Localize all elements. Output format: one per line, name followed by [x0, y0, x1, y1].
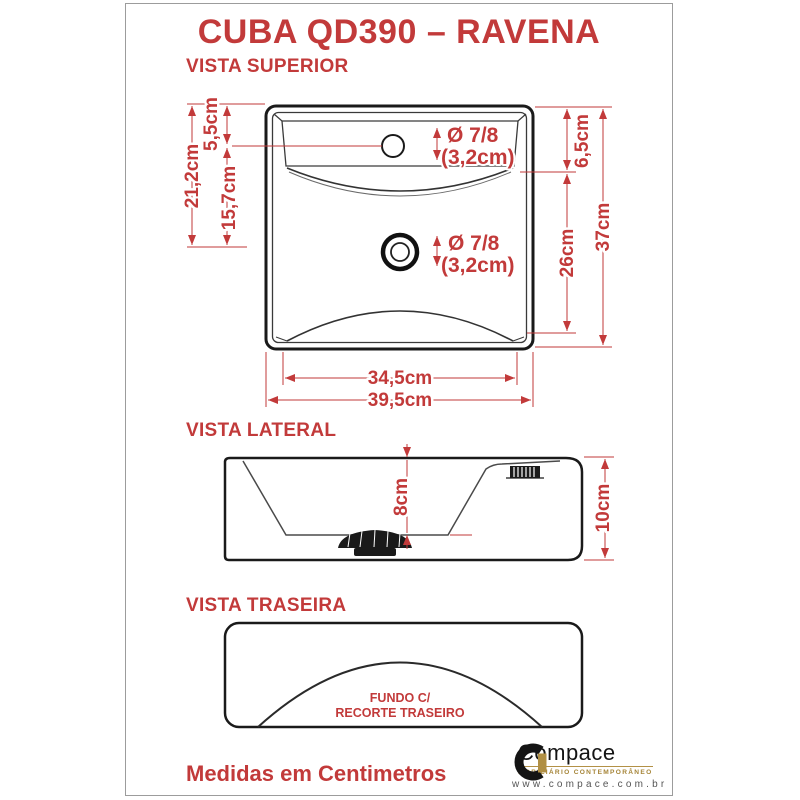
- faucet-diameter-label-cm: (3,2cm): [441, 146, 515, 169]
- dim-label-inner-depth: 8cm: [391, 478, 412, 516]
- dim-label-top-to-faucet: 5,5cm: [201, 97, 222, 151]
- section-label-side-view: VISTA LATERAL: [186, 420, 336, 442]
- compace-logo: Compace MOBILIÁRIO CONTEMPORÂNEO www.com…: [512, 742, 668, 790]
- dim-label-top-to-drain: 21,2cm: [182, 144, 203, 208]
- dim-label-total-height: 10cm: [593, 484, 614, 533]
- dim-label-inner-width: 34,5cm: [368, 368, 432, 389]
- page-title: CUBA QD390 – RAVENA: [125, 13, 673, 52]
- spec-sheet-page: CUBA QD390 – RAVENA VISTA SUPERIOR: [0, 0, 800, 800]
- faucet-hole: [382, 135, 404, 157]
- dim-label-right-total: 37cm: [593, 203, 614, 252]
- dim-label-right-top: 6,5cm: [572, 114, 593, 168]
- back-cutout-note-line1: FUNDO C/: [370, 691, 431, 705]
- faucet-hole-side: [506, 466, 544, 478]
- drain-diameter-label: Ø 7/8: [448, 232, 500, 255]
- units-note: Medidas em Centimetros: [186, 761, 446, 787]
- dim-label-right-mid: 26cm: [557, 229, 578, 278]
- back-view-drawing: FUNDO C/ RECORTE TRASEIRO: [125, 590, 673, 740]
- side-view-drawing: 8cm 10cm: [125, 440, 673, 580]
- top-view-drawing: 21,2cm 5,5cm 15,7cm 6,5cm 26cm 37cm 34,5…: [125, 85, 673, 415]
- compace-c-icon: [512, 742, 552, 782]
- dim-label-faucet-to-drain: 15,7cm: [219, 166, 240, 230]
- drain-hole: [383, 235, 417, 269]
- drain-diameter-label-cm: (3,2cm): [441, 254, 515, 277]
- faucet-diameter-label: Ø 7/8: [447, 124, 499, 147]
- section-label-top-view: VISTA SUPERIOR: [186, 56, 349, 78]
- back-cutout-note-line2: RECORTE TRASEIRO: [335, 706, 464, 720]
- dim-label-outer-width: 39,5cm: [368, 390, 432, 411]
